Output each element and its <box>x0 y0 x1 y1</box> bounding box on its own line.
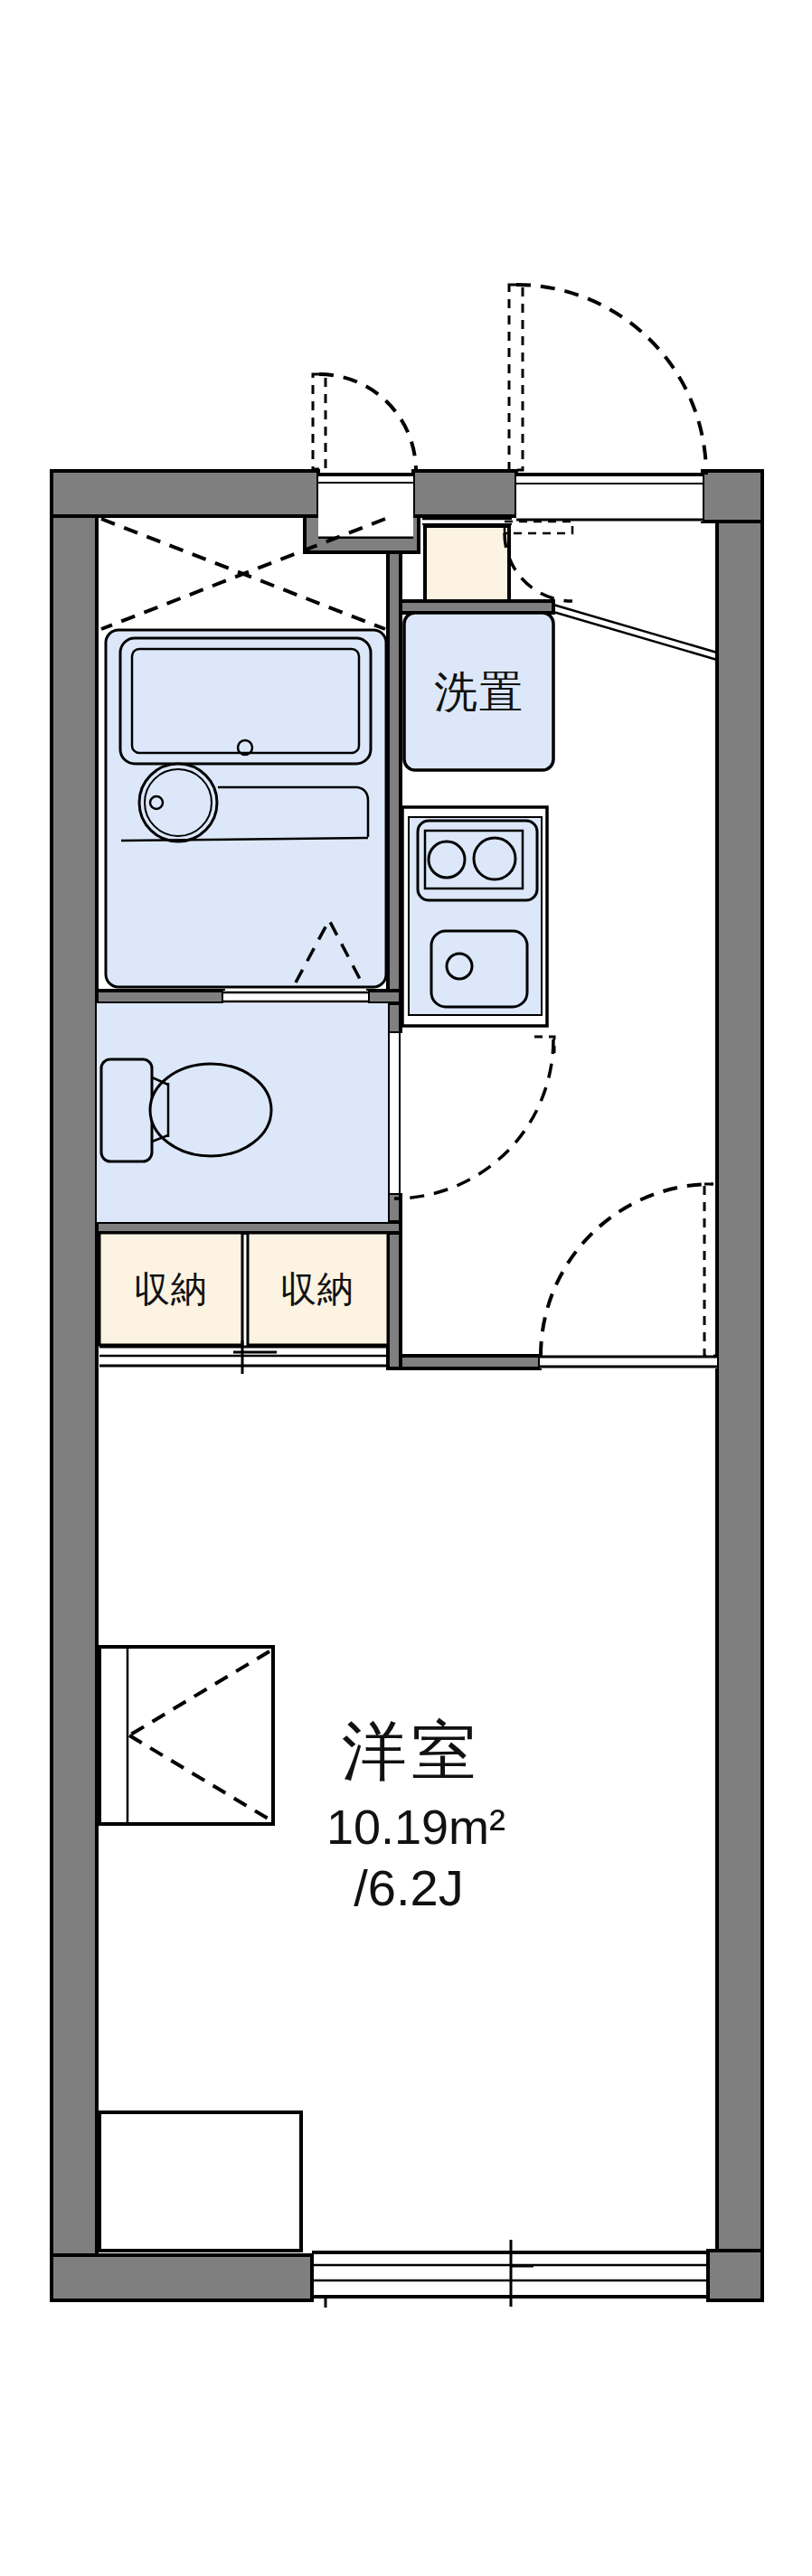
main-room-label: 洋室 <box>342 1715 481 1787</box>
entrance-door-leaf <box>509 285 523 470</box>
wall-top-left <box>52 471 318 516</box>
wall-divider-upper <box>388 552 401 1033</box>
toilet-tank <box>101 1059 152 1161</box>
wall-divider-lower <box>388 1193 401 1368</box>
room-door-arc <box>541 1184 713 1356</box>
wall-bath-toilet-right <box>368 991 401 1003</box>
cabinet-box <box>99 1647 273 1824</box>
wall-bath-toilet-left <box>97 991 223 1003</box>
wall-left <box>52 471 97 2300</box>
genkan-edge-line <box>553 605 717 653</box>
room-door-leaf <box>704 1184 717 1356</box>
entrance-door-arc <box>516 285 706 475</box>
storage-right-label: 収納 <box>280 1269 354 1309</box>
washer-label: 洗置 <box>434 668 524 716</box>
main-room-area-tatami: /6.2J <box>354 1859 463 1916</box>
wall-right <box>717 471 762 2300</box>
wall-above-storage <box>97 1222 401 1233</box>
storage-left-label: 収納 <box>134 1269 208 1309</box>
hall-door-arc <box>505 533 572 601</box>
genkan-step <box>425 526 509 601</box>
service-door-leaf <box>313 374 326 469</box>
toilet-door-arc <box>394 1039 553 1199</box>
entrance-opening <box>516 473 703 522</box>
toilet-door-tip <box>534 1037 554 1053</box>
floor-plan-drawing: 洗置 収納 収納 <box>0 0 812 2576</box>
wall-top-right <box>703 471 762 522</box>
storage: 収納 収納 <box>99 1233 388 1374</box>
wall-cabinet <box>99 1647 273 1824</box>
washer-space: 洗置 <box>404 613 553 770</box>
wall-room-threshold <box>401 1356 540 1368</box>
wall-top-mid <box>413 471 516 516</box>
low-counter-box <box>99 2112 301 2251</box>
wall-bottom-right-pillar <box>708 2251 762 2300</box>
storage-sliding-doors <box>99 1340 388 1374</box>
main-room: 洋室 10.19m² /6.2J <box>99 1647 708 2308</box>
toilet-room <box>97 1003 388 1222</box>
bathroom <box>101 519 386 987</box>
wall-bottom <box>52 2255 312 2300</box>
kitchen-unit <box>402 807 547 1026</box>
service-door-arc <box>319 374 416 471</box>
floor-plan-page: 洗置 収納 収納 <box>0 0 812 2576</box>
hall-door-leaf <box>505 522 572 533</box>
bottom-window <box>312 2240 708 2308</box>
main-room-area-sqm: 10.19m² <box>326 1800 505 1854</box>
